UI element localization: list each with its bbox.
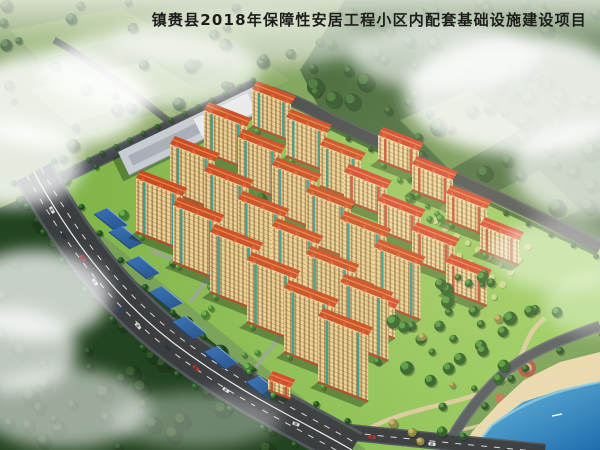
mist-cloud	[110, 392, 280, 448]
rendering-scene	[0, 0, 600, 450]
project-title: 镇赉县2018年保障性安居工程小区内配套基础设施建设项目	[152, 9, 587, 30]
mist-cloud	[350, 20, 540, 90]
architectural-rendering: 镇赉县2018年保障性安居工程小区内配套基础设施建设项目	[0, 0, 600, 450]
